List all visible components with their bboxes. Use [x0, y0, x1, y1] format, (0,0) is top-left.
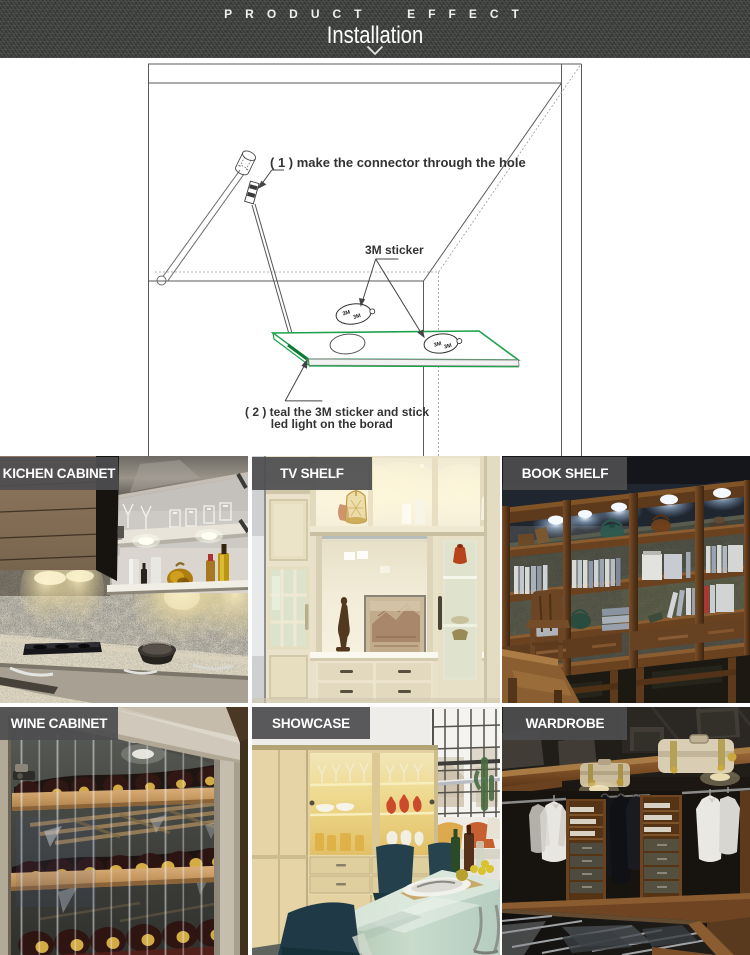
svg-text:( 1 ) make the connector throu: ( 1 ) make the connector through the hol… — [270, 155, 526, 170]
svg-text:led light on the borad: led light on the borad — [271, 417, 393, 431]
svg-text:3M sticker: 3M sticker — [365, 243, 424, 257]
